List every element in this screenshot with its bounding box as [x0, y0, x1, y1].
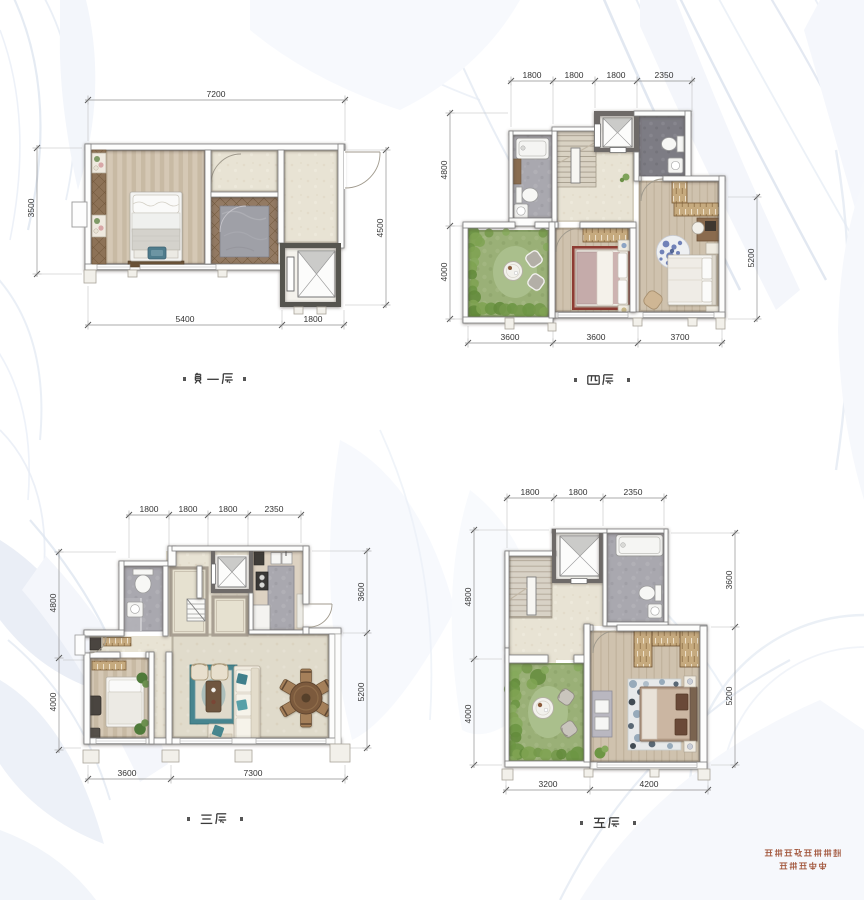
svg-text:1800: 1800	[304, 314, 323, 324]
svg-text:1800: 1800	[219, 504, 238, 514]
svg-text:3500: 3500	[26, 198, 36, 217]
svg-text:3600: 3600	[118, 768, 137, 778]
svg-text:3200: 3200	[539, 779, 558, 789]
svg-text:7200: 7200	[207, 89, 226, 99]
svg-text:5200: 5200	[356, 682, 366, 701]
svg-text:5200: 5200	[724, 686, 734, 705]
svg-text:1800: 1800	[179, 504, 198, 514]
svg-text:7300: 7300	[244, 768, 263, 778]
svg-text:1800: 1800	[565, 70, 584, 80]
svg-text:5200: 5200	[746, 248, 756, 267]
svg-text:5400: 5400	[176, 314, 195, 324]
svg-text:4500: 4500	[375, 218, 385, 237]
svg-text:4000: 4000	[463, 704, 473, 723]
svg-text:3600: 3600	[356, 582, 366, 601]
svg-text:3600: 3600	[501, 332, 520, 342]
svg-text:4800: 4800	[439, 160, 449, 179]
svg-text:1800: 1800	[521, 487, 540, 497]
svg-text:3700: 3700	[671, 332, 690, 342]
svg-text:1800: 1800	[140, 504, 159, 514]
svg-text:2350: 2350	[265, 504, 284, 514]
svg-text:3600: 3600	[724, 570, 734, 589]
svg-text:4000: 4000	[439, 262, 449, 281]
svg-text:1800: 1800	[523, 70, 542, 80]
svg-text:4800: 4800	[463, 587, 473, 606]
svg-text:2350: 2350	[624, 487, 643, 497]
svg-text:4200: 4200	[640, 779, 659, 789]
svg-text:1800: 1800	[569, 487, 588, 497]
svg-text:3600: 3600	[587, 332, 606, 342]
svg-text:4800: 4800	[48, 593, 58, 612]
svg-text:2350: 2350	[655, 70, 674, 80]
svg-text:1800: 1800	[607, 70, 626, 80]
svg-text:4000: 4000	[48, 692, 58, 711]
